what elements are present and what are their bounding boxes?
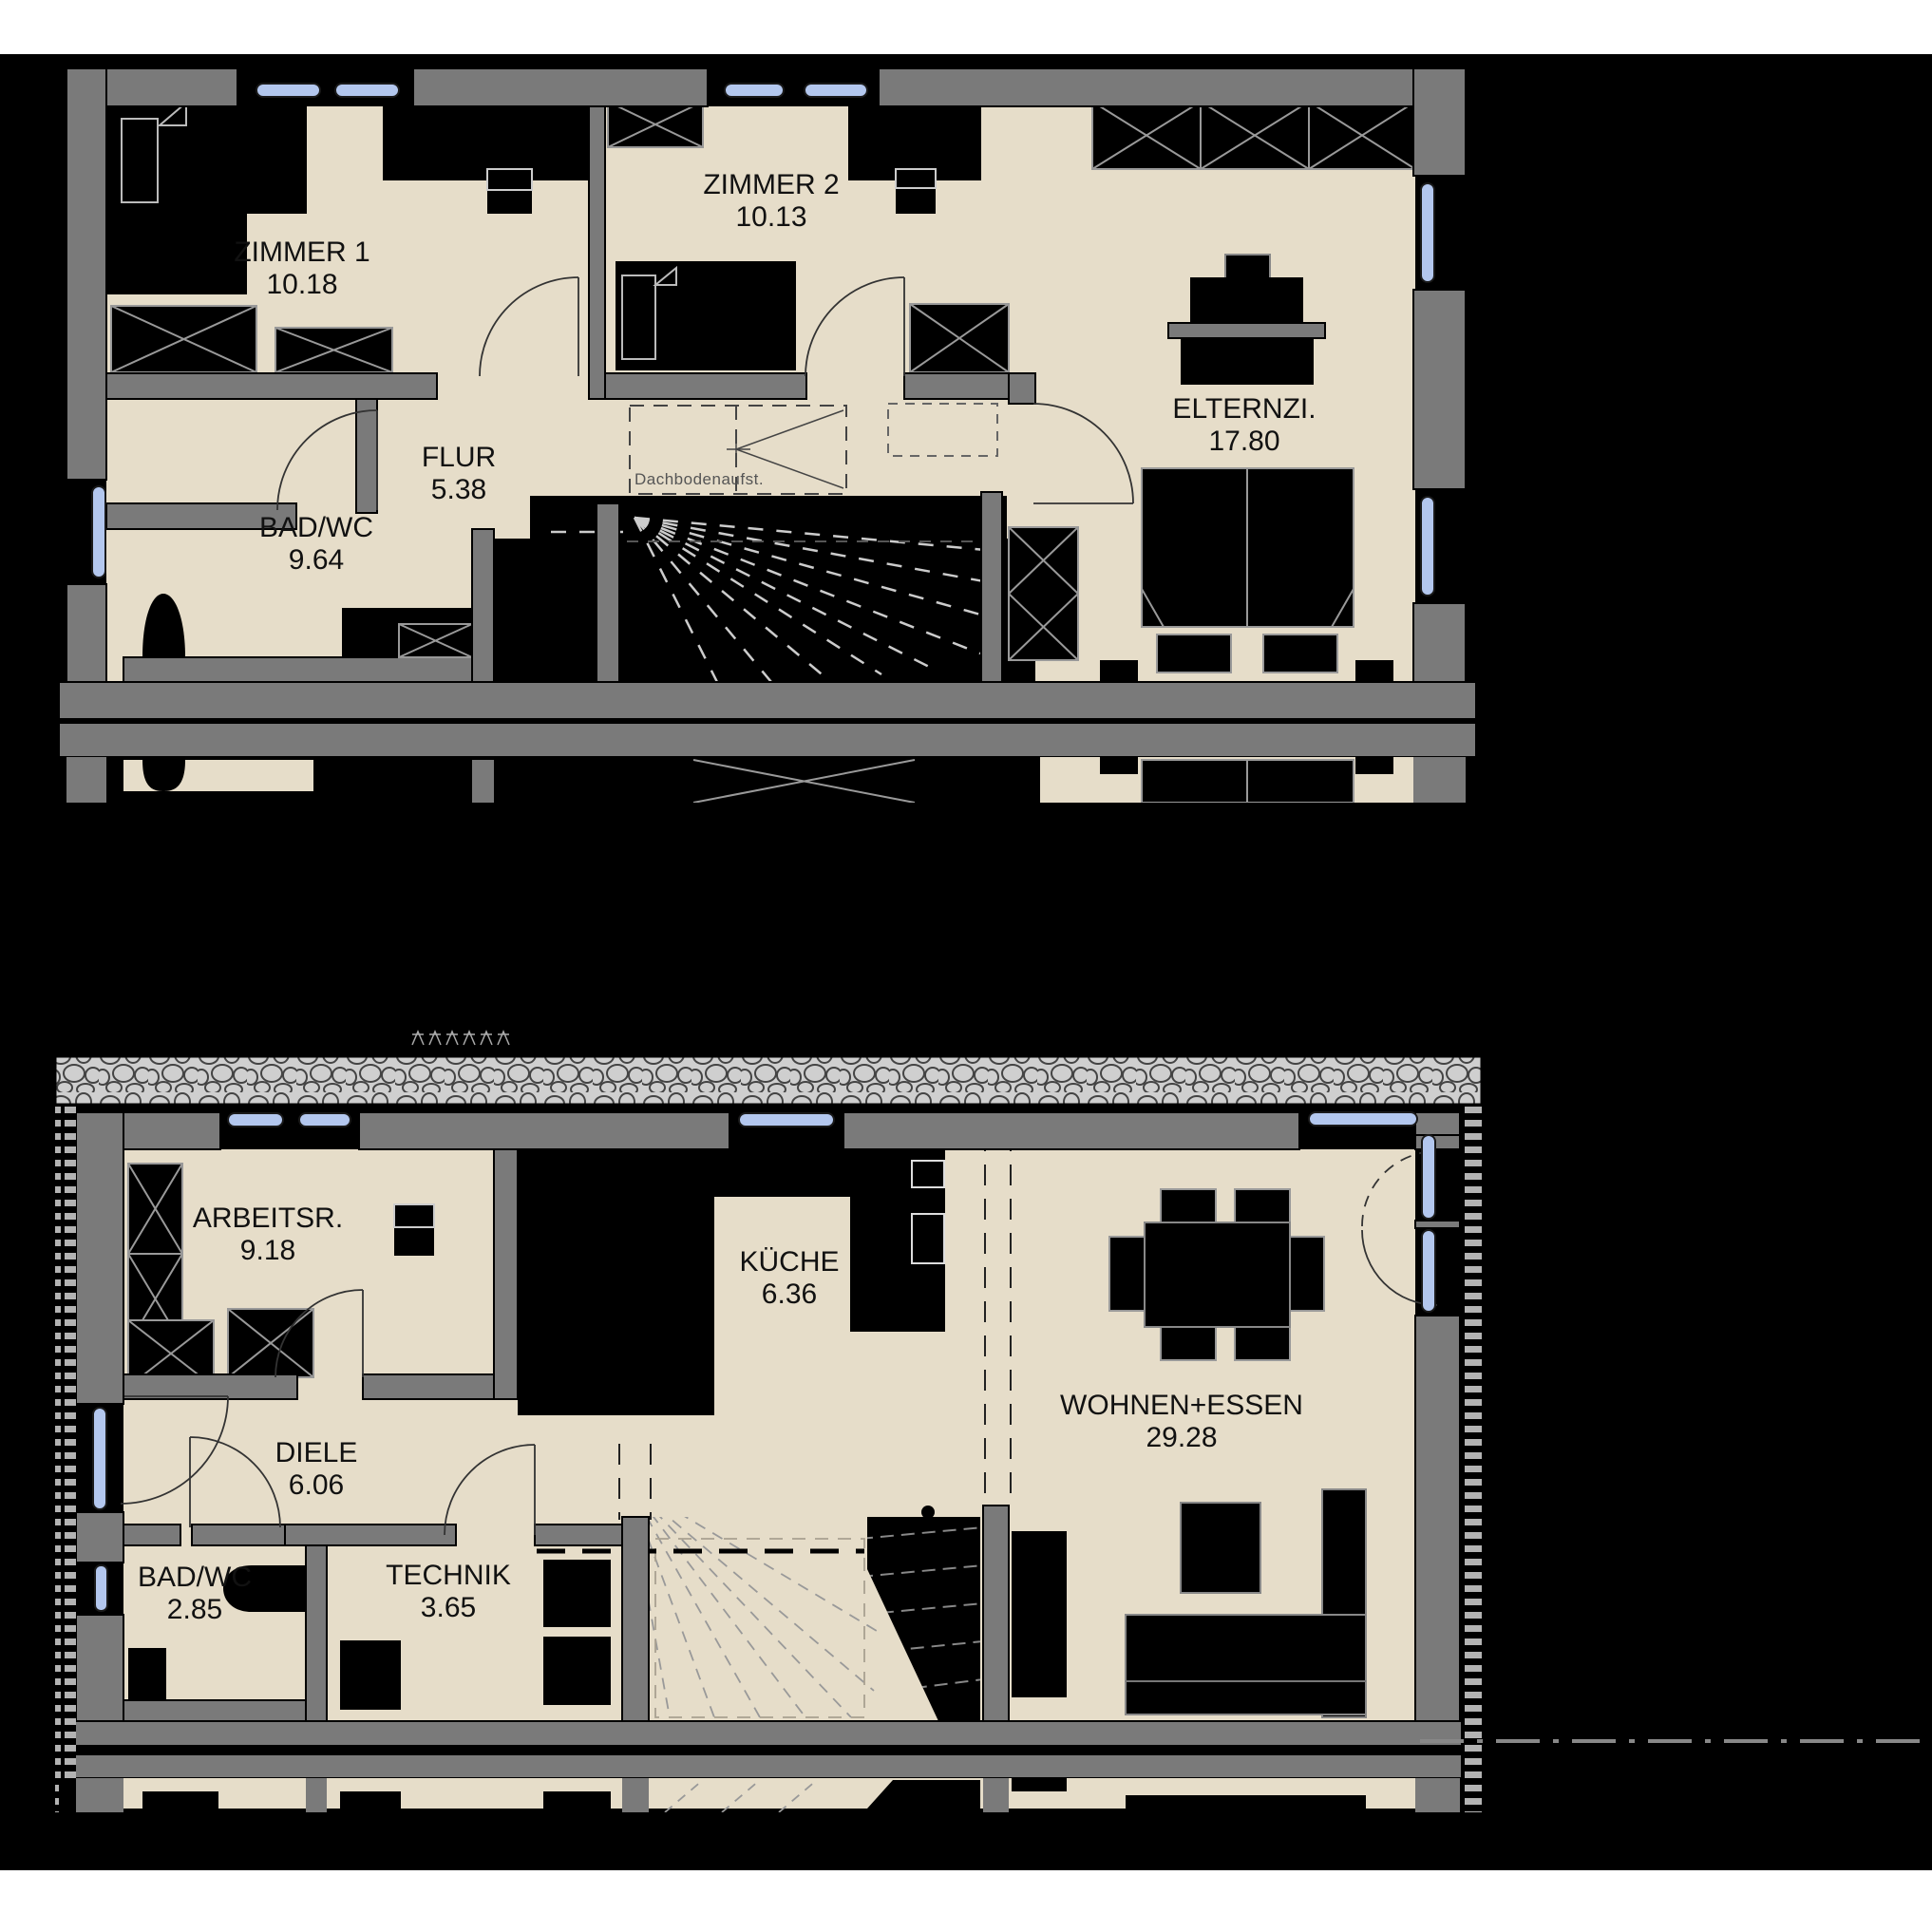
room-label-elternzimmer: ELTERNZI. 17.80	[1172, 393, 1316, 458]
room-area: 3.65	[386, 1592, 511, 1624]
attic-annotation: Dachbodenaufst.	[635, 470, 764, 489]
room-name: FLUR	[422, 442, 496, 474]
room-area: 6.06	[275, 1469, 358, 1502]
room-name: TECHNIK	[386, 1560, 511, 1592]
room-area: 6.36	[739, 1279, 839, 1311]
room-area: 10.13	[703, 201, 839, 234]
room-name: KÜCHE	[739, 1246, 839, 1279]
room-name: ZIMMER 1	[234, 237, 369, 269]
room-name: WOHNEN+ESSEN	[1060, 1390, 1303, 1422]
eg-mirror-strip	[59, 1778, 1463, 1812]
room-label-zimmer2: ZIMMER 2 10.13	[703, 169, 839, 234]
room-name: BAD/WC	[138, 1562, 252, 1594]
room-name: ELTERNZI.	[1172, 393, 1316, 426]
eg-left-hatch-band	[55, 1107, 76, 1812]
room-name: ARBEITSR.	[193, 1203, 343, 1235]
room-label-wohnen-essen: WOHNEN+ESSEN 29.28	[1060, 1390, 1303, 1454]
room-area: 9.18	[193, 1235, 343, 1267]
eg-right-hatch-band	[1461, 1107, 1484, 1812]
room-label-diele: DIELE 6.06	[275, 1437, 358, 1502]
og-mirror-strip	[59, 757, 1476, 803]
room-label-flur: FLUR 5.38	[422, 442, 496, 506]
eg-gravel-strip	[55, 1056, 1482, 1105]
room-name: ZIMMER 2	[703, 169, 839, 201]
room-area: 9.64	[259, 544, 373, 577]
room-label-bad-og: BAD/WC 9.64	[259, 512, 373, 577]
floor-plan-page: ZIMMER 1 10.18 ZIMMER 2 10.13 ELTERNZI. …	[0, 0, 1932, 1932]
room-label-arbeitsraum: ARBEITSR. 9.18	[193, 1203, 343, 1267]
eg-ornament-marks	[412, 1032, 509, 1045]
room-area: 17.80	[1172, 426, 1316, 458]
room-area: 2.85	[138, 1594, 252, 1626]
room-area: 10.18	[234, 269, 369, 301]
room-label-bad-eg: BAD/WC 2.85	[138, 1562, 252, 1626]
room-area: 5.38	[422, 474, 496, 506]
room-label-technik: TECHNIK 3.65	[386, 1560, 511, 1624]
og-stairwell	[530, 492, 1078, 682]
room-name: BAD/WC	[259, 512, 373, 544]
room-label-kueche: KÜCHE 6.36	[739, 1246, 839, 1311]
room-area: 29.28	[1060, 1422, 1303, 1454]
room-label-zimmer1: ZIMMER 1 10.18	[234, 237, 369, 301]
room-name: DIELE	[275, 1437, 358, 1469]
